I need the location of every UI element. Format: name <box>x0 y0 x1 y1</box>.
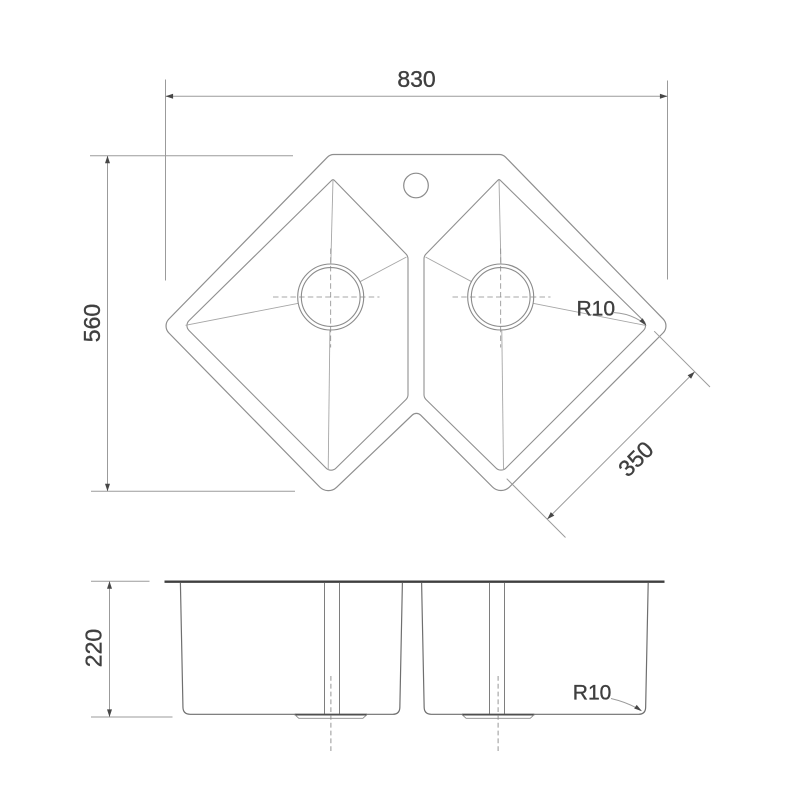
svg-text:R10: R10 <box>573 682 612 705</box>
svg-text:220: 220 <box>81 629 107 667</box>
svg-text:560: 560 <box>79 304 105 342</box>
svg-text:R10: R10 <box>577 297 616 320</box>
svg-text:830: 830 <box>397 66 435 92</box>
